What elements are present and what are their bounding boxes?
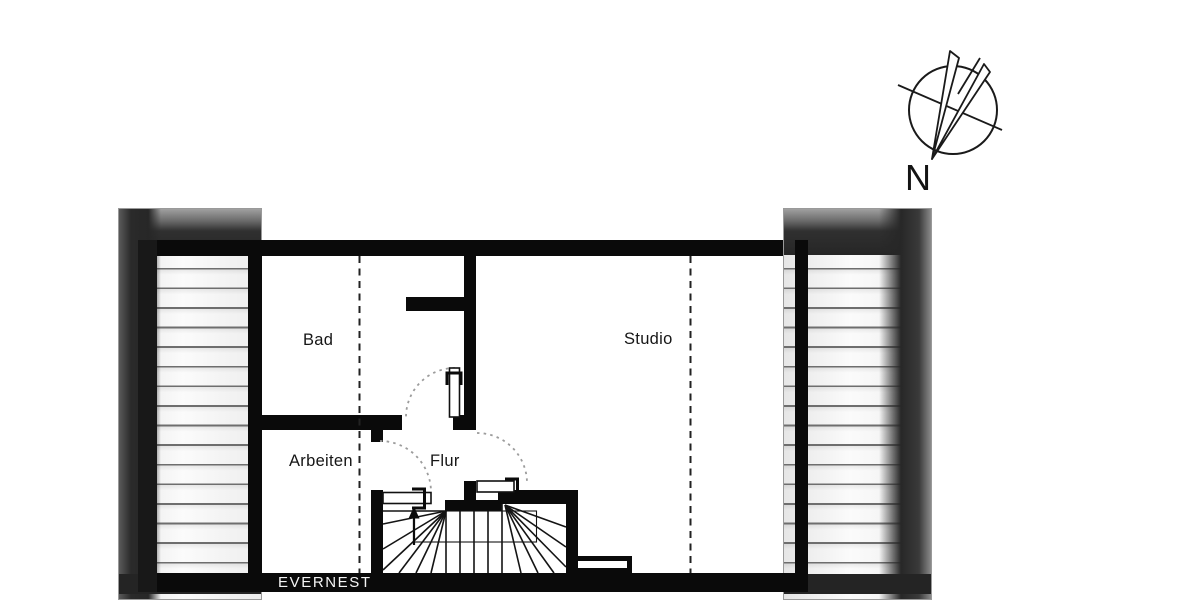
wall-knee-left	[248, 240, 262, 592]
staircase-treads	[383, 504, 566, 573]
stair-direction-arrow	[409, 507, 420, 546]
room-label-arbeiten: Arbeiten	[289, 453, 353, 470]
brand-label: EVERNEST	[278, 575, 372, 590]
compass-north-label: N	[905, 160, 931, 196]
door-swing-arc-studio	[477, 433, 527, 483]
room-label-flur: Flur	[430, 453, 460, 470]
wall-step-out	[578, 556, 632, 573]
door-leaf-bad	[450, 368, 460, 417]
wall-top	[138, 240, 783, 256]
wall-right	[795, 240, 808, 592]
wall-flur-lower	[371, 490, 383, 575]
wall-stair-right	[566, 490, 578, 573]
wall-bottom	[138, 573, 795, 592]
floorplan-canvas: Bad Studio Arbeiten Flur EVERNEST N	[0, 0, 1200, 600]
wall-bad-door-cap	[453, 415, 476, 430]
door-swing-arc-bad	[406, 368, 455, 417]
door-leaf-arbeiten	[383, 493, 431, 504]
door-frame-arbeiten	[412, 489, 425, 508]
wall-left	[138, 240, 157, 592]
wall-bad-stub	[406, 297, 476, 311]
wall-flur-jamb-upper	[371, 428, 383, 442]
wall-bad-studio	[464, 253, 476, 430]
wall-studio-door-jamb	[464, 481, 476, 503]
door-swing-arc-arbeiten	[380, 441, 431, 492]
door-frame-bad	[447, 373, 461, 385]
room-label-bad: Bad	[303, 332, 333, 349]
room-label-studio: Studio	[624, 331, 673, 348]
compass-rose	[898, 51, 1002, 159]
roof-shade-outer-right	[879, 209, 931, 599]
